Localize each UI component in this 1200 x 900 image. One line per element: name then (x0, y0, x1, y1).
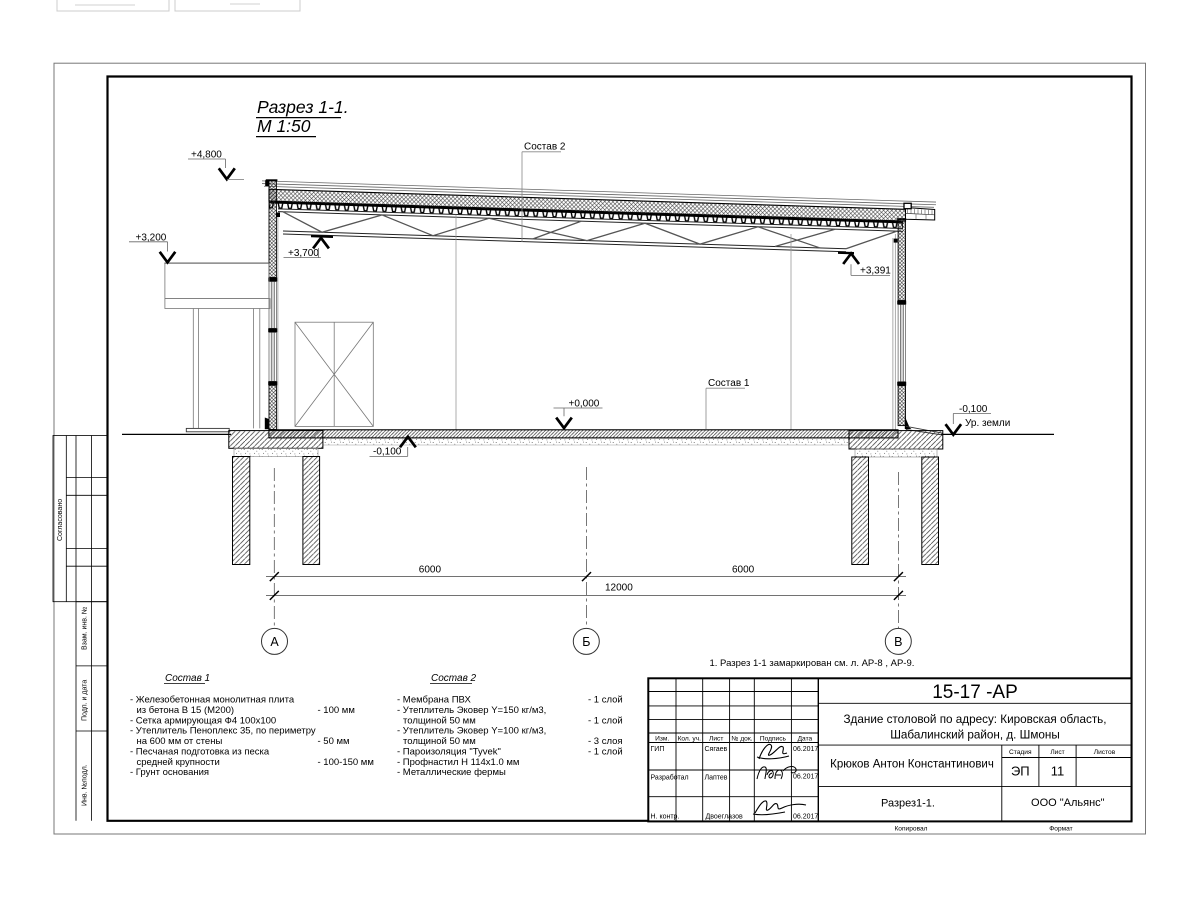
svg-text:толщиной 50 мм: толщиной 50 мм (403, 715, 476, 726)
svg-text:1. Разрез 1-1 замаркирован см.: 1. Разрез 1-1 замаркирован см. л. АР-8 ,… (710, 658, 915, 669)
svg-text:Копировал: Копировал (894, 826, 927, 833)
svg-text:Лаптев: Лаптев (705, 775, 728, 782)
svg-text:№ док.: № док. (731, 735, 752, 742)
svg-text:Лист: Лист (1050, 749, 1064, 756)
svg-text:15-17 -АР: 15-17 -АР (932, 682, 1018, 703)
svg-text:на 600 мм от стены: на 600 мм от стены (137, 736, 223, 747)
svg-text:- Песчаная подготовка из песка: - Песчаная подготовка из песка (130, 746, 270, 757)
svg-text:Формат: Формат (1049, 826, 1072, 833)
svg-text:6000: 6000 (419, 565, 442, 576)
svg-text:Лист: Лист (709, 735, 723, 742)
svg-text:ООО "Альянс": ООО "Альянс" (1031, 797, 1105, 809)
svg-text:Стадия: Стадия (1009, 749, 1032, 756)
svg-text:Разрез1-1.: Разрез1-1. (881, 798, 935, 810)
svg-text:Состав 1: Состав 1 (708, 378, 750, 389)
svg-text:- Пароизоляция "Tyvek": - Пароизоляция "Tyvek" (397, 746, 501, 757)
svg-text:толщиной 50 мм: толщиной 50 мм (403, 736, 476, 747)
svg-text:+3,700: +3,700 (288, 248, 319, 259)
svg-text:В: В (894, 635, 902, 649)
svg-text:Крюков Антон Константинович: Крюков Антон Константинович (830, 759, 994, 771)
svg-text:+3,391: +3,391 (860, 266, 891, 277)
svg-text:М 1:50: М 1:50 (257, 116, 311, 136)
svg-text:Состав 2: Состав 2 (431, 673, 477, 684)
svg-text:Взам. инв. №: Взам. инв. № (82, 607, 89, 650)
svg-text:06.2017: 06.2017 (793, 746, 818, 753)
svg-text:- Профнастил Н 114х1.0 мм: - Профнастил Н 114х1.0 мм (397, 757, 519, 768)
svg-text:06.2017: 06.2017 (793, 774, 818, 781)
svg-text:- 1 слой: - 1 слой (588, 695, 623, 706)
svg-text:Н. контр.: Н. контр. (651, 813, 680, 820)
svg-text:А: А (270, 635, 279, 649)
svg-text:- 1 слой: - 1 слой (588, 715, 623, 726)
svg-text:Инв. №подл.: Инв. №подл. (82, 764, 89, 806)
svg-text:ЭП: ЭП (1011, 764, 1030, 779)
svg-text:06.2017: 06.2017 (793, 813, 818, 820)
svg-text:Шабалинский район, д. Шмоны: Шабалинский район, д. Шмоны (890, 729, 1060, 742)
svg-text:Сягаев: Сягаев (705, 746, 728, 753)
svg-text:средней крупности: средней крупности (137, 757, 220, 768)
svg-text:Кол. уч.: Кол. уч. (678, 735, 702, 742)
svg-text:- 100 мм: - 100 мм (318, 705, 355, 716)
svg-text:11: 11 (1051, 764, 1065, 779)
svg-text:Ур. земли: Ур. земли (965, 418, 1010, 429)
svg-text:- Мембрана ПВХ: - Мембрана ПВХ (397, 695, 471, 706)
svg-text:Здание столовой по адресу: Кир: Здание столовой по адресу: Кировская обл… (843, 713, 1106, 726)
svg-text:- Металлические фермы: - Металлические фермы (397, 767, 506, 778)
svg-text:- Сетка армирующая Ф4 100х100: - Сетка армирующая Ф4 100х100 (130, 715, 276, 726)
svg-text:Листов: Листов (1094, 749, 1116, 756)
svg-text:ГИП: ГИП (651, 746, 665, 753)
svg-text:12000: 12000 (605, 583, 633, 594)
svg-text:Изм.: Изм. (655, 735, 669, 742)
svg-text:6000: 6000 (732, 565, 755, 576)
svg-text:-0,100: -0,100 (373, 446, 402, 457)
svg-text:Разработал: Разработал (651, 774, 689, 782)
svg-text:- 100-150 мм: - 100-150 мм (318, 757, 374, 768)
svg-text:- Железобетонная монолитная п: - Железобетонная монолитная плита (130, 695, 295, 706)
svg-text:- Грунт основания: - Грунт основания (130, 767, 209, 778)
svg-text:Б: Б (582, 635, 590, 649)
svg-text:Состав 2: Состав 2 (524, 141, 566, 152)
svg-text:Двоеглазов: Двоеглазов (706, 813, 743, 820)
svg-text:Состав 1: Состав 1 (165, 673, 210, 684)
svg-text:Дата: Дата (798, 735, 813, 742)
svg-text:Подпись: Подпись (760, 735, 787, 742)
svg-text:Разрез 1-1.: Разрез 1-1. (257, 97, 349, 117)
svg-text:Подп. и дата: Подп. и дата (82, 680, 89, 721)
svg-text:- 50 мм: - 50 мм (318, 736, 350, 747)
svg-text:- 1 слой: - 1 слой (588, 746, 623, 757)
svg-text:- 3 слоя: - 3 слоя (588, 736, 623, 747)
svg-text:Согласовано: Согласовано (57, 499, 64, 541)
